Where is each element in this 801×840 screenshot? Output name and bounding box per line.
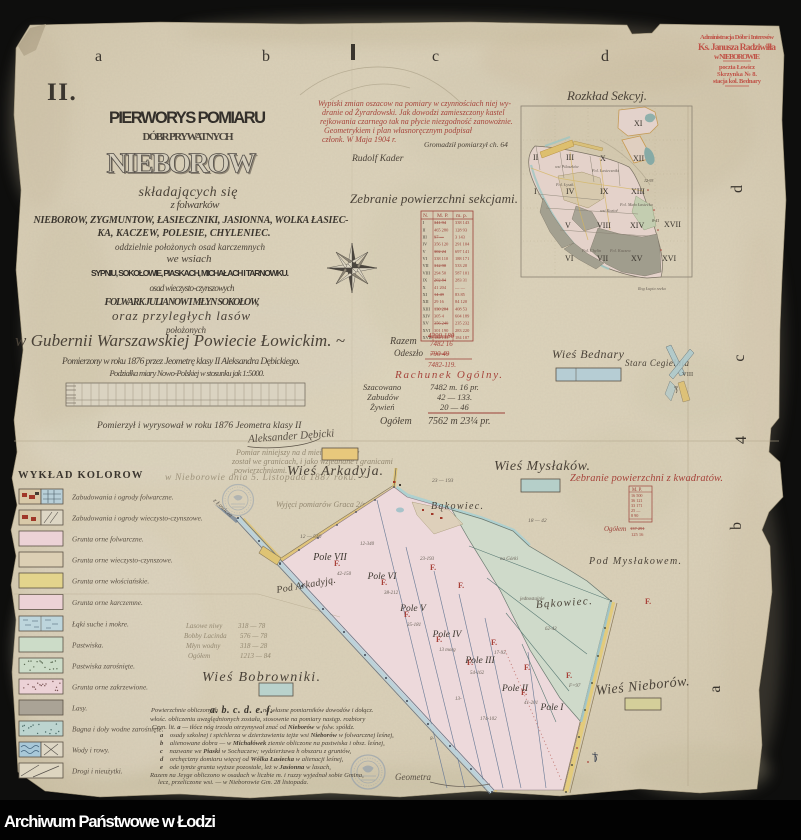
svg-text:202 84: 202 84 [434, 278, 447, 283]
svg-text:318 — 28: 318 — 28 [239, 642, 268, 650]
svg-text:IV: IV [566, 187, 575, 196]
svg-text:WYKŁAD KOLOROW: WYKŁAD KOLOROW [18, 470, 144, 481]
svg-text:Rachunek Ogólny.: Rachunek Ogólny. [394, 369, 502, 381]
svg-text:e ode tymże grunta wyższe pozo: e ode tymże grunta wyższe pozostałe, leż… [160, 764, 331, 771]
svg-text:533 20: 533 20 [455, 263, 468, 268]
svg-text:V: V [565, 221, 571, 230]
svg-text:Pastwiska.: Pastwiska. [71, 641, 104, 650]
svg-text:VII: VII [423, 263, 430, 268]
svg-text:VIII: VIII [597, 221, 611, 230]
svg-text:12-340: 12-340 [360, 542, 375, 547]
svg-text:Pomierzył i wyrysował w roku 1: Pomierzył i wyrysował w roku 1876 Jeomet… [96, 421, 302, 431]
svg-text:Zabudowania i ogrody wieczysto: Zabudowania i ogrody wieczysto-czynszowe… [72, 514, 203, 523]
svg-text:wsi Kozioł: wsi Kozioł [600, 208, 618, 213]
svg-text:Bąkowiec.: Bąkowiec. [431, 501, 483, 512]
svg-text:składających się: składających się [139, 185, 238, 200]
svg-text:Pole VI: Pole VI [367, 572, 398, 582]
svg-text:Razem na Jeyge obliczono w osa: Razem na Jeyge obliczono w osadach w lic… [149, 772, 364, 779]
svg-text:338 143: 338 143 [455, 220, 470, 225]
svg-text:XI: XI [634, 119, 643, 128]
svg-text:d: d [729, 185, 746, 193]
svg-text:17-93: 17-93 [494, 651, 506, 656]
svg-text:Fol. Chylin: Fol. Chylin [581, 248, 601, 253]
svg-text:137 291: 137 291 [630, 526, 645, 531]
svg-text:Geometrykiem i plan własnoręcz: Geometrykiem i plan własnoręcznym podpis… [324, 126, 473, 135]
svg-text:Razem: Razem [389, 336, 417, 347]
svg-text:42 — 133.: 42 — 133. [437, 392, 472, 402]
svg-text:PIERWORYS POMIARU: PIERWORYS POMIARU [109, 109, 267, 127]
svg-text:465 280: 465 280 [434, 227, 449, 232]
svg-text:4299 180: 4299 180 [428, 332, 455, 340]
svg-text:Fol. Kaczew: Fol. Kaczew [609, 248, 631, 253]
svg-text:12 — 540: 12 — 540 [300, 533, 322, 540]
svg-text:Lasowe niwy: Lasowe niwy [185, 622, 223, 630]
svg-text:N.: N. [423, 213, 429, 219]
svg-text:184 187: 184 187 [455, 335, 470, 340]
svg-text:Ogółem: Ogółem [380, 416, 412, 427]
svg-text:Młyn wodny: Młyn wodny [185, 642, 221, 650]
svg-text:F.: F. [491, 638, 497, 647]
svg-text:FOLWARK JULIANOW I MŁYN SOKOŁO: FOLWARK JULIANOW I MŁYN SOKOŁOW, [104, 297, 261, 308]
svg-text:II: II [533, 153, 539, 162]
svg-text:d: d [601, 48, 609, 65]
svg-text:42-150: 42-150 [337, 572, 352, 577]
svg-text:23 — 193: 23 — 193 [432, 478, 454, 484]
svg-text:Zabudowania i ogrody folwarczn: Zabudowania i ogrody folwarczne. [72, 493, 174, 502]
svg-text:Wody i rowy.: Wody i rowy. [72, 746, 110, 755]
svg-text:w Gubernii Warszawskiej Powiec: w Gubernii Warszawskiej Powiecie Łowicki… [15, 331, 345, 350]
svg-text:20 — 46: 20 — 46 [440, 402, 470, 412]
svg-text:Fol. Łyszk.: Fol. Łyszk. [555, 182, 574, 187]
svg-text:7482 m. 16 pr.: 7482 m. 16 pr. [430, 382, 479, 392]
svg-text:Pole III: Pole III [464, 656, 495, 666]
svg-text:Fol. Mała Łasiecka: Fol. Mała Łasiecka [619, 202, 653, 207]
svg-text:osad wieczysto-czynszowych: osad wieczysto-czynszowych [150, 283, 236, 293]
svg-text:291 104: 291 104 [455, 242, 470, 247]
svg-text:Pole V: Pole V [399, 604, 427, 614]
svg-text:d orchęcizny domiaru więcej od: d orchęcizny domiaru więcej od Wólka Łas… [160, 756, 344, 763]
svg-text:XVII: XVII [664, 220, 681, 229]
svg-text:Żywień: Żywień [370, 402, 395, 412]
svg-text:341 94: 341 94 [434, 220, 447, 225]
svg-text:12-93: 12-93 [644, 178, 653, 183]
svg-text:Rog Łupia rzeka: Rog Łupia rzeka [637, 286, 666, 291]
svg-text:III: III [423, 235, 428, 240]
svg-text:29 16: 29 16 [434, 299, 445, 304]
svg-text:41 204: 41 204 [434, 285, 447, 290]
svg-text:84 120: 84 120 [455, 299, 468, 304]
svg-text:7562 m 23¼ pr.: 7562 m 23¼ pr. [428, 416, 491, 427]
svg-text:b alienowane dobra — w Michałó: b alienowane dobra — w Michałówek ziemie… [160, 740, 385, 747]
svg-text:X: X [600, 154, 606, 163]
svg-text:M. P.: M. P. [437, 213, 449, 219]
svg-text:c nazwane we Piaski w Sochacze: c nazwane we Piaski w Sochaczew; wydzier… [160, 748, 351, 755]
svg-text:8-41: 8-41 [652, 218, 659, 223]
svg-text:35-181: 35-181 [407, 623, 421, 628]
svg-text:XIV: XIV [630, 221, 644, 230]
svg-text:XII: XII [423, 299, 430, 304]
svg-text:stacja kol. Bednary: stacja kol. Bednary [713, 78, 762, 85]
svg-text:13 morg: 13 morg [439, 648, 456, 653]
svg-text:na Górki: na Górki [500, 557, 519, 562]
svg-text:14 49: 14 49 [434, 292, 445, 297]
svg-text:F.: F. [566, 671, 572, 680]
svg-text:38-212: 38-212 [384, 591, 399, 596]
svg-text:XV: XV [631, 254, 643, 263]
svg-text:rejkowania czarnego tak na pły: rejkowania czarnego tak na płycie niezgo… [320, 117, 513, 126]
svg-text:włośc. obliczeniu uwzględniony: włośc. obliczeniu uwzględnionych została… [150, 716, 365, 723]
svg-text:97 —: 97 — [434, 235, 444, 240]
svg-text:697 141: 697 141 [455, 249, 469, 254]
svg-text:294 50: 294 50 [434, 270, 447, 275]
svg-text:Gromadził pomiarzył ch. 64: Gromadził pomiarzył ch. 64 [424, 140, 508, 149]
svg-text:poczta Łowicz: poczta Łowicz [719, 64, 755, 71]
svg-text:Rudolf Kader: Rudolf Kader [351, 153, 404, 164]
svg-text:8-: 8- [430, 737, 435, 742]
svg-text:oraz przyległych lasów: oraz przyległych lasów [112, 308, 250, 323]
svg-text:F.: F. [430, 563, 436, 572]
svg-text:235 232: 235 232 [455, 321, 469, 326]
svg-text:408 53: 408 53 [455, 306, 468, 311]
svg-text:b: b [728, 522, 745, 530]
svg-text:Wyjęci pomiarów Graca 2/s: Wyjęci pomiarów Graca 2/s [276, 500, 365, 509]
svg-text:Odeszło: Odeszło [394, 348, 423, 358]
svg-text:790 49: 790 49 [430, 350, 450, 358]
svg-text:VII: VII [597, 254, 608, 263]
svg-text:Szacowano: Szacowano [363, 382, 401, 392]
svg-text:Czyn. lit. a — tłócz nóg trzod: Czyn. lit. a — tłócz nóg trzoda otrzymyw… [152, 724, 355, 731]
svg-text:lecz, przeliczone wsi. — w Nie: lecz, przeliczone wsi. — w Nieborowie Gm… [158, 779, 309, 786]
svg-text:Pole I: Pole I [540, 703, 565, 713]
svg-text:Archiwum Państwowe w Łodzi: Archiwum Państwowe w Łodzi [4, 813, 216, 831]
svg-text:II.: II. [47, 79, 77, 106]
svg-text:XII: XII [633, 154, 644, 163]
svg-text:Zebranie powierzchni sekcjami.: Zebranie powierzchni sekcjami. [350, 191, 518, 206]
svg-text:Lasy.: Lasy. [71, 704, 87, 713]
svg-text:VI: VI [565, 254, 574, 263]
svg-text:54-162: 54-162 [470, 671, 485, 676]
svg-text:F.: F. [524, 663, 530, 672]
svg-text:Pole VII: Pole VII [312, 552, 347, 563]
svg-text:F=97: F=97 [568, 684, 581, 689]
svg-text:174-102: 174-102 [480, 717, 497, 722]
svg-text:125 16: 125 16 [631, 532, 644, 537]
svg-text:8 90: 8 90 [631, 513, 638, 518]
svg-text:587 101: 587 101 [455, 270, 469, 275]
svg-text:4: 4 [733, 436, 750, 444]
svg-text:Pole II: Pole II [501, 684, 529, 694]
svg-text:Łąki suche i mokre.: Łąki suche i mokre. [71, 620, 129, 629]
svg-text:Zebranie powierzchni z kwadrat: Zebranie powierzchni z kwadratów. [570, 473, 723, 484]
svg-text:SYPNIU, SOKOŁOWIE, PIASKACH, M: SYPNIU, SOKOŁOWIE, PIASKACH, MICHAŁACH I… [91, 268, 289, 278]
svg-text:312 90: 312 90 [434, 263, 447, 268]
svg-text:w NIEBOROWIE: w NIEBOROWIE [714, 52, 760, 61]
svg-text:we wsiach: we wsiach [167, 253, 213, 265]
svg-text:Pastwiska zarośnięte.: Pastwiska zarośnięte. [71, 662, 135, 671]
svg-text:VI: VI [423, 256, 428, 261]
svg-text:członk. W Maja 1904 r.: członk. W Maja 1904 r. [322, 135, 396, 144]
svg-text:XIV: XIV [423, 314, 432, 319]
svg-text:62-43: 62-43 [545, 627, 557, 632]
svg-text:Pod Mysłakowem.: Pod Mysłakowem. [588, 556, 681, 567]
svg-text:I: I [534, 187, 537, 196]
svg-text:— —: — — [454, 285, 465, 290]
svg-text:Pomierzony w roku 1876 przez J: Pomierzony w roku 1876 przez Jeometrę kl… [61, 357, 300, 367]
svg-text:Geometra: Geometra [395, 772, 431, 782]
svg-text:Grunta orne karczemne.: Grunta orne karczemne. [72, 598, 143, 607]
svg-text:338 110: 338 110 [434, 256, 449, 261]
svg-text:DÓBR PRYWATNYCH: DÓBR PRYWATNYCH [143, 131, 234, 143]
svg-text:XV: XV [423, 321, 430, 326]
svg-text:Ogółem: Ogółem [604, 525, 626, 533]
svg-text:oddzielnie położonych osad kar: oddzielnie położonych osad karczemnych [115, 242, 266, 252]
svg-text:318 — 78: 318 — 78 [237, 622, 266, 630]
svg-text:Fol. Łasieczniki: Fol. Łasieczniki [591, 168, 620, 173]
svg-text:Grunta orne włościańskie.: Grunta orne włościańskie. [72, 577, 149, 586]
svg-text:1213 — 84: 1213 — 84 [240, 652, 271, 660]
svg-text:a: a [707, 685, 724, 692]
svg-text:c: c [432, 48, 439, 65]
svg-text:305 4: 305 4 [434, 314, 445, 319]
svg-text:Wypiski zmian oszacow na pomia: Wypiski zmian oszacow na pomiary w czynn… [318, 99, 511, 108]
svg-text:dranie od Żyrardowski. Jak dow: dranie od Żyrardowski. Jak dowodzi zamie… [322, 108, 505, 117]
svg-text:VIII: VIII [682, 371, 693, 378]
svg-text:Wieś Arkadyja.: Wieś Arkadyja. [287, 464, 383, 479]
svg-text:IX: IX [600, 187, 609, 196]
svg-text:18 — 42: 18 — 42 [528, 517, 547, 524]
svg-text:Bobby Lacinda: Bobby Lacinda [184, 632, 227, 640]
svg-text:VIII: VIII [423, 270, 431, 275]
svg-text:Pole IV: Pole IV [432, 630, 463, 640]
svg-text:a: a [95, 48, 102, 65]
svg-text:Zabudów: Zabudów [367, 392, 399, 402]
svg-text:23-193: 23-193 [420, 557, 435, 562]
svg-text:3 143: 3 143 [455, 235, 466, 240]
svg-text:m. p.: m. p. [456, 213, 468, 219]
svg-text:Powierzchnie obliczonych: Powierzchnie obliczonych [150, 707, 218, 714]
svg-text:130 204: 130 204 [434, 306, 449, 311]
svg-text:Podziałka miary Nowo-Polskiej: Podziałka miary Nowo-Polskiej w stosunku… [109, 368, 265, 378]
svg-text:Rozkład Sekcyj.: Rozkład Sekcyj. [566, 88, 647, 103]
svg-text:F.: F. [458, 581, 464, 590]
svg-text:576 — 78: 576 — 78 [240, 632, 268, 640]
svg-text:Grunta orne zakrzewione.: Grunta orne zakrzewione. [72, 683, 148, 692]
svg-text:7482 16: 7482 16 [430, 340, 453, 348]
svg-text:KA, KACZEW, POLESIE, CHYLENIEC: KA, KACZEW, POLESIE, CHYLENIEC. [97, 228, 271, 239]
svg-text:XIII: XIII [423, 306, 431, 311]
svg-text:Grunta orne folwarczne.: Grunta orne folwarczne. [72, 535, 144, 544]
svg-text:41-201: 41-201 [524, 701, 538, 706]
svg-text:356 240: 356 240 [434, 321, 449, 326]
svg-text:XVI: XVI [662, 254, 677, 263]
svg-text:XIII: XIII [631, 187, 645, 196]
svg-text:a osady szkolnej i spichlerza: a osady szkolnej i spichlerza w dzierżaw… [160, 732, 394, 739]
svg-text:604 189: 604 189 [455, 314, 470, 319]
svg-text:c: c [731, 354, 748, 361]
svg-text:Ogółem: Ogółem [188, 652, 210, 660]
svg-text:Administracja Dóbr i Interesów: Administracja Dóbr i Interesów [700, 34, 774, 41]
svg-text:XI: XI [423, 292, 428, 297]
svg-text:NIEBOROW: NIEBOROW [107, 148, 257, 180]
svg-text:302 24: 302 24 [434, 249, 447, 254]
svg-text:13-: 13- [455, 697, 462, 702]
svg-text:283 220: 283 220 [455, 328, 470, 333]
svg-text:Wieś Mysłaków.: Wieś Mysłaków. [494, 459, 590, 474]
svg-text:128 93: 128 93 [455, 227, 468, 232]
svg-text:III: III [566, 153, 574, 162]
svg-text:Grunta orne wieczysto-czynszow: Grunta orne wieczysto-czynszowe. [72, 556, 173, 565]
svg-text:Drogi i nieużytki.: Drogi i nieużytki. [71, 767, 123, 776]
svg-text:Wieś Bednary: Wieś Bednary [552, 347, 625, 361]
svg-text:na własne pomiarników dowodów: na własne pomiarników dowodów i dołącz. [263, 707, 374, 714]
svg-text:b: b [262, 48, 270, 65]
svg-text:Bagna i doły wodne zarośnięte.: Bagna i doły wodne zarośnięte. [72, 725, 164, 734]
svg-text:356 120: 356 120 [434, 242, 449, 247]
svg-text:wsi Pilaszków: wsi Pilaszków [555, 164, 579, 169]
svg-text:83 85: 83 85 [455, 292, 466, 297]
svg-text:283 31: 283 31 [455, 278, 467, 283]
svg-text:Skrzynka № 8.: Skrzynka № 8. [717, 71, 757, 78]
svg-text:188 171: 188 171 [455, 256, 469, 261]
svg-text:F.: F. [645, 597, 651, 606]
svg-text:NIEBOROW, ZYGMUNTOW, ŁASIECZNI: NIEBOROW, ZYGMUNTOW, ŁASIECZNIKI, JASION… [33, 215, 349, 226]
svg-text:7482-119.: 7482-119. [428, 361, 456, 369]
svg-text:z folwarków: z folwarków [170, 199, 221, 211]
